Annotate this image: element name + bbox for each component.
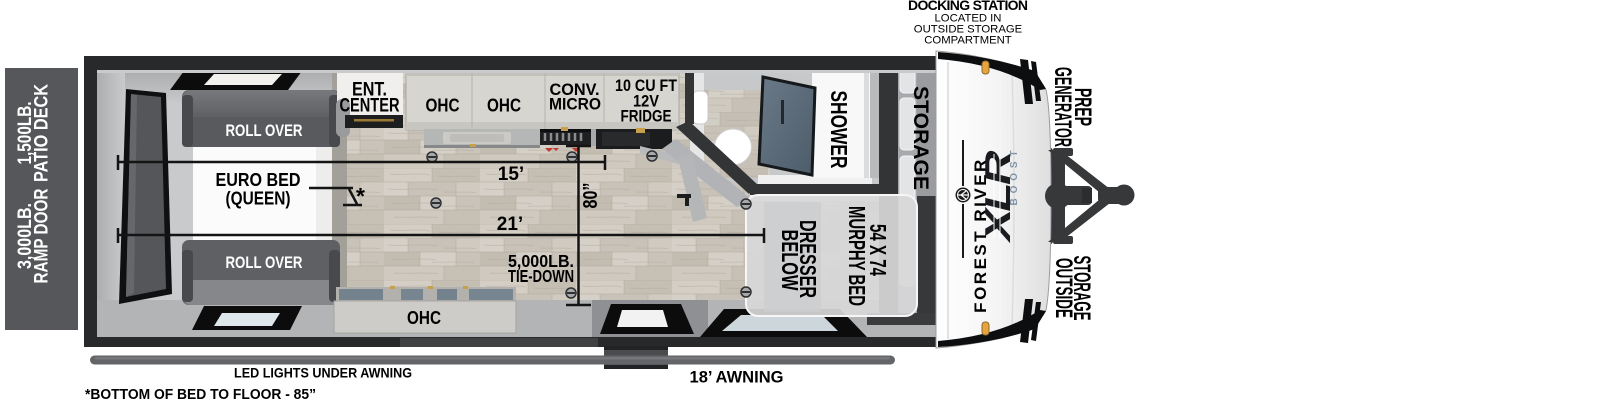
svg-text:*: * (356, 183, 365, 209)
svg-text:OHC: OHC (426, 95, 460, 116)
svg-text:LED LIGHTS UNDER AWNING: LED LIGHTS UNDER AWNING (234, 365, 412, 381)
svg-text:PREP: PREP (1069, 88, 1096, 126)
svg-text:STORAGE: STORAGE (909, 86, 932, 190)
svg-text:18’ AWNING: 18’ AWNING (690, 368, 784, 387)
svg-text:COMPARTMENT: COMPARTMENT (924, 35, 1012, 47)
svg-text:TIE-DOWN: TIE-DOWN (508, 266, 574, 286)
svg-text:15’: 15’ (498, 164, 524, 185)
svg-text:XLR: XLR (978, 145, 1018, 245)
svg-text:STORAGE: STORAGE (1068, 256, 1095, 321)
svg-text:MICRO: MICRO (549, 95, 601, 114)
svg-text:BELOW: BELOW (777, 230, 803, 291)
svg-text:FRIDGE: FRIDGE (621, 107, 672, 126)
svg-text:80”: 80” (580, 183, 602, 209)
svg-text:CENTER: CENTER (340, 95, 400, 117)
svg-text:MURPHY BED: MURPHY BED (844, 206, 870, 306)
svg-text:SHOWER: SHOWER (826, 91, 852, 169)
svg-text:OHC: OHC (487, 95, 521, 116)
svg-text:(QUEEN): (QUEEN) (226, 188, 291, 209)
svg-text:OHC: OHC (407, 307, 441, 328)
svg-text:ROLL OVER: ROLL OVER (226, 254, 303, 272)
svg-text:DOCKING STATION: DOCKING STATION (908, 0, 1028, 13)
svg-text:*BOTTOM OF BED TO FLOOR - 85”: *BOTTOM OF BED TO FLOOR - 85” (85, 387, 316, 401)
svg-text:ROLL OVER: ROLL OVER (226, 122, 303, 140)
svg-text:21’: 21’ (497, 214, 523, 235)
